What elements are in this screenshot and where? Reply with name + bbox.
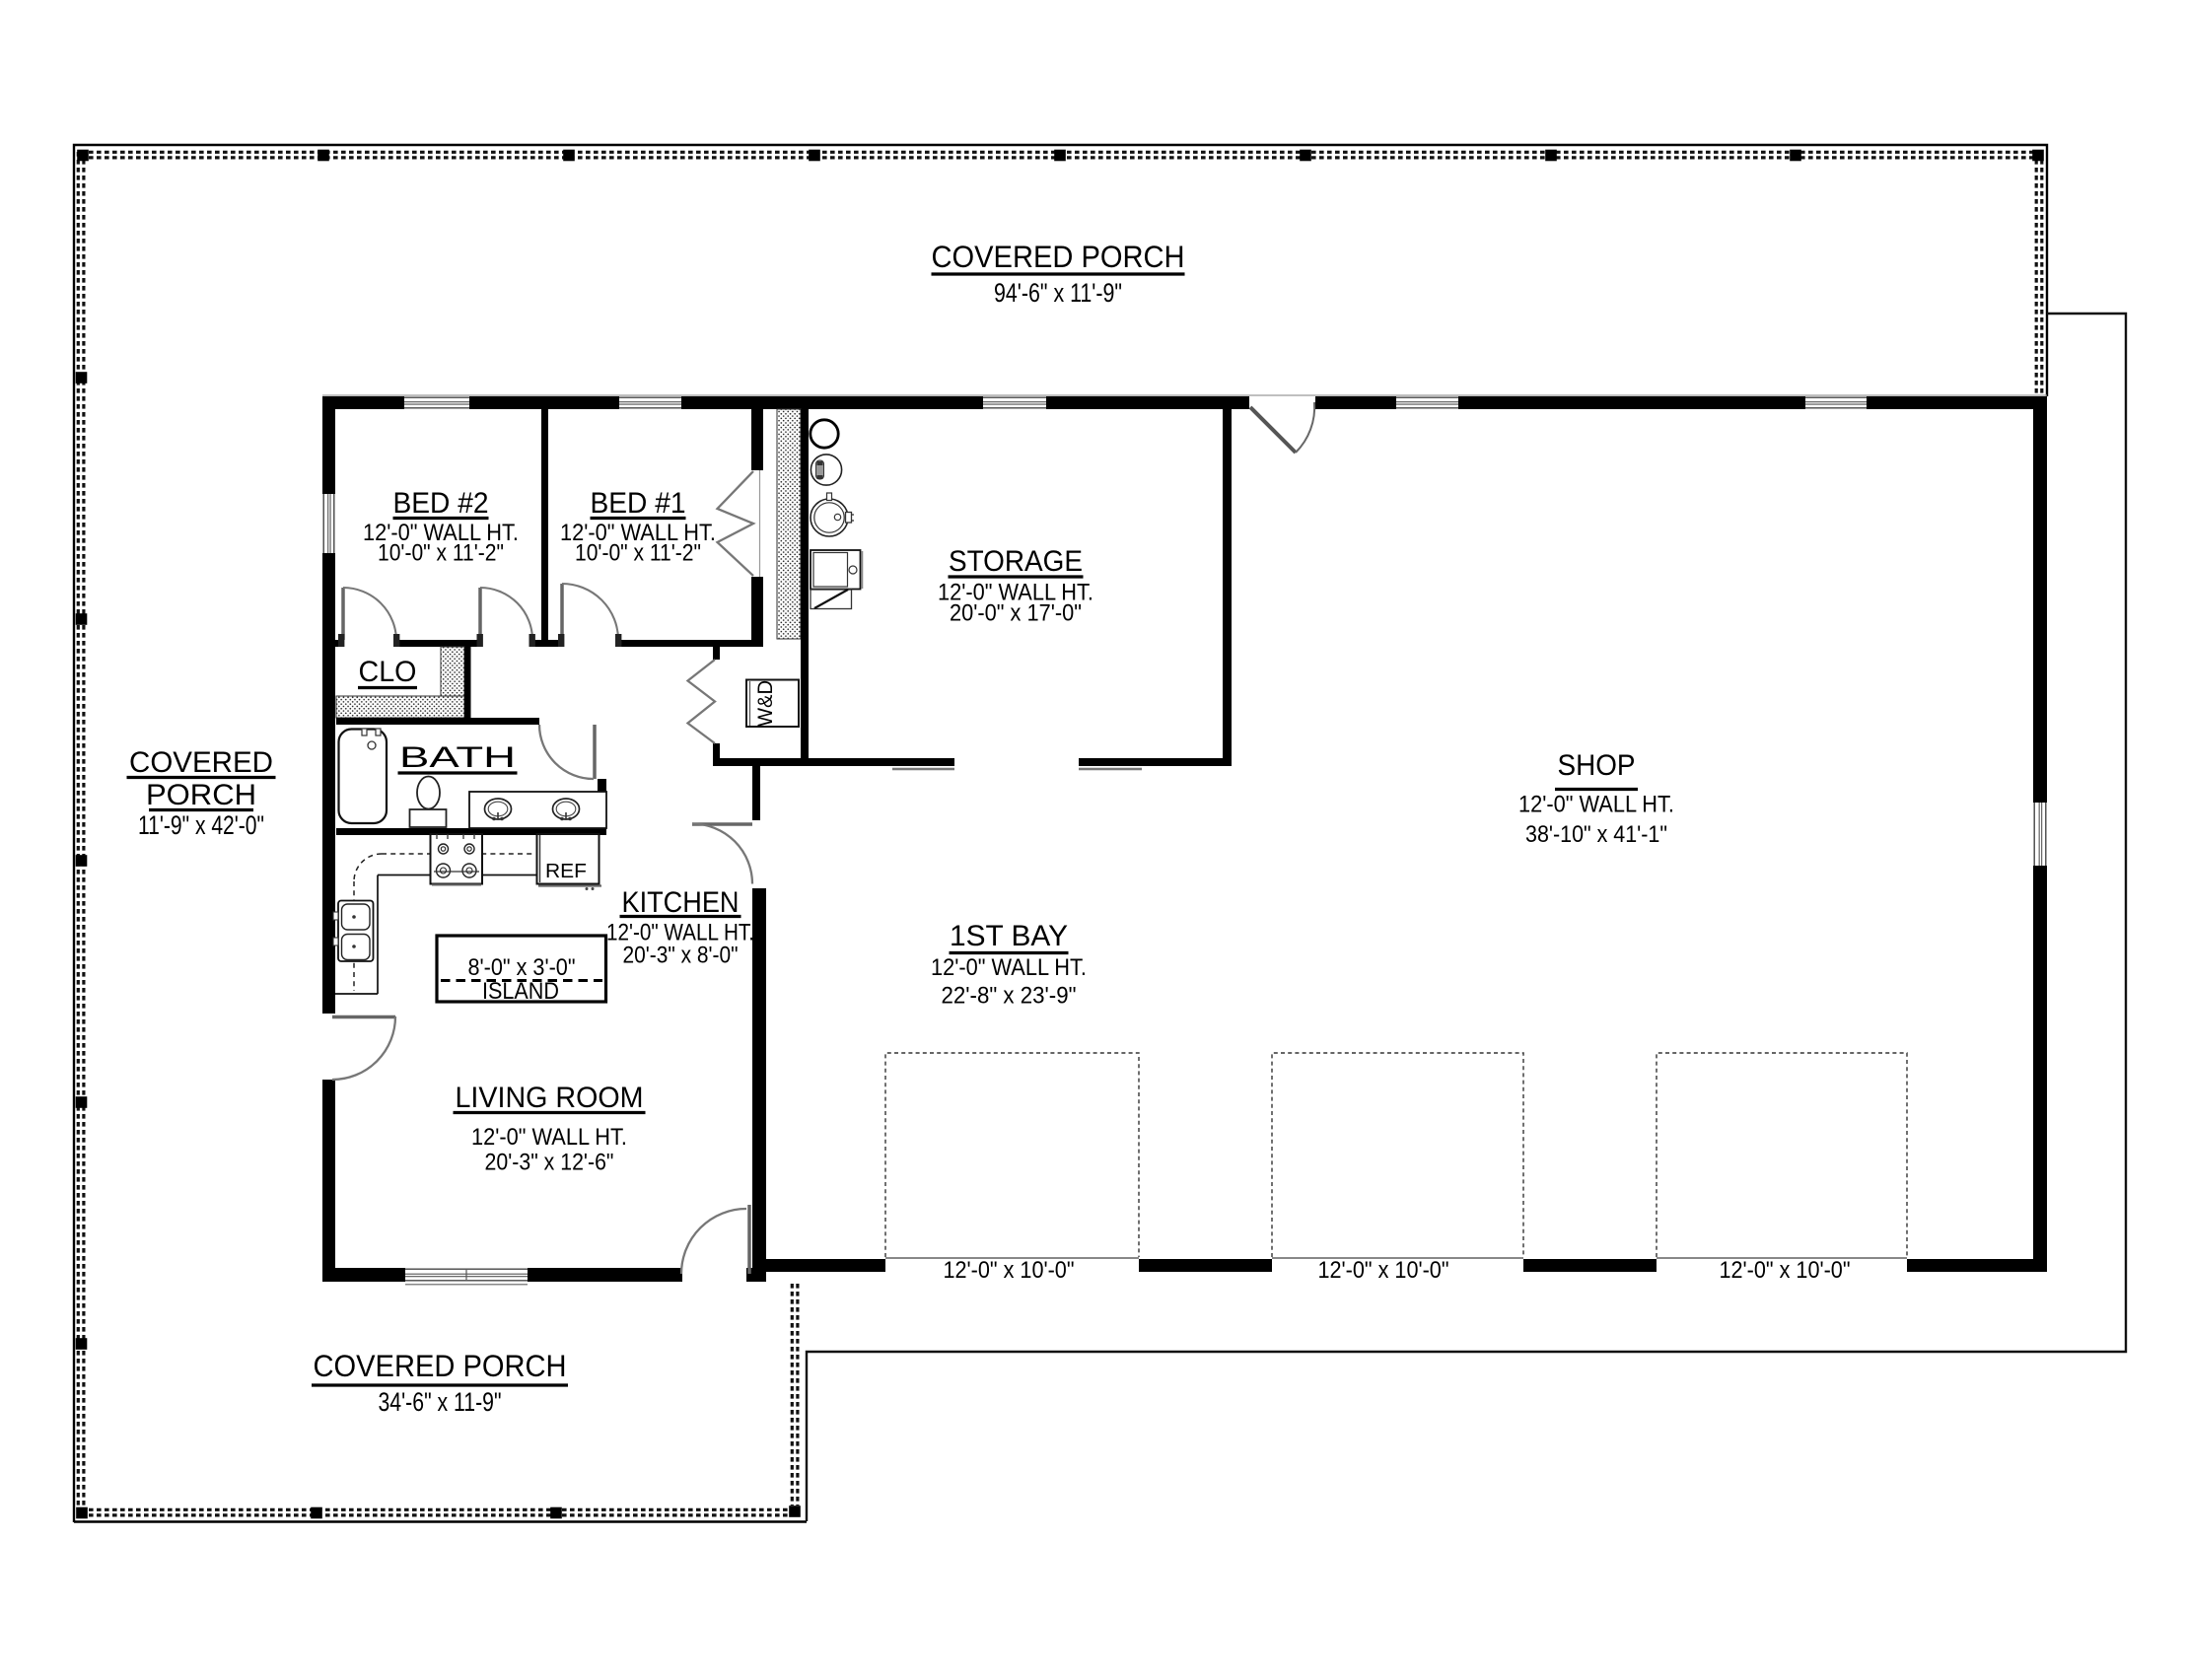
svg-text:LIVING ROOM: LIVING ROOM	[456, 1082, 644, 1114]
svg-text:12'-0" x 10'-0": 12'-0" x 10'-0"	[1318, 1257, 1449, 1284]
svg-text:COVERED: COVERED	[129, 746, 273, 779]
svg-text:11'-9" x 42'-0": 11'-9" x 42'-0"	[138, 810, 264, 840]
svg-text:22'-8" x 23'-9": 22'-8" x 23'-9"	[942, 983, 1077, 1010]
svg-text:94'-6" x 11'-9": 94'-6" x 11'-9"	[994, 278, 1122, 308]
svg-text:12'-0" WALL HT.: 12'-0" WALL HT.	[931, 954, 1087, 981]
svg-text:12'-0" x 10'-0": 12'-0" x 10'-0"	[944, 1257, 1075, 1284]
svg-text:10'-0" x 11'-2": 10'-0" x 11'-2"	[378, 540, 504, 567]
svg-text:12'-0" WALL HT.: 12'-0" WALL HT.	[471, 1124, 627, 1151]
svg-text:12'-0" WALL HT.: 12'-0" WALL HT.	[1518, 792, 1674, 818]
svg-text:12'-0" x 10'-0": 12'-0" x 10'-0"	[1720, 1257, 1851, 1284]
svg-text:BED #1: BED #1	[591, 487, 686, 520]
svg-text:10'-0" x 11'-2": 10'-0" x 11'-2"	[575, 540, 701, 567]
svg-text:KITCHEN: KITCHEN	[622, 886, 740, 919]
svg-text:COVERED PORCH: COVERED PORCH	[314, 1348, 567, 1383]
svg-text:BED #2: BED #2	[393, 487, 489, 520]
svg-text:COVERED PORCH: COVERED PORCH	[932, 239, 1185, 274]
svg-text:ISLAND: ISLAND	[482, 978, 559, 1005]
svg-text:SHOP: SHOP	[1558, 749, 1636, 782]
svg-text:20'-3" x 8'-0": 20'-3" x 8'-0"	[623, 943, 739, 969]
svg-text:8'-0" x 3'-0": 8'-0" x 3'-0"	[468, 954, 576, 981]
svg-text:STORAGE: STORAGE	[949, 545, 1083, 578]
svg-text:38'-10" x 41'-1": 38'-10" x 41'-1"	[1525, 821, 1667, 848]
svg-text:20'-0" x 17'-0": 20'-0" x 17'-0"	[950, 600, 1082, 627]
svg-text:BATH: BATH	[399, 741, 516, 774]
svg-text:34'-6" x 11-9": 34'-6" x 11-9"	[379, 1387, 502, 1417]
svg-text:W&D: W&D	[754, 680, 777, 727]
svg-text:1ST BAY: 1ST BAY	[950, 920, 1068, 952]
svg-text:20'-3" x 12'-6": 20'-3" x 12'-6"	[485, 1150, 614, 1176]
svg-text:REF: REF	[545, 861, 587, 882]
svg-text:CLO: CLO	[359, 656, 417, 688]
svg-text:PORCH: PORCH	[146, 779, 256, 811]
